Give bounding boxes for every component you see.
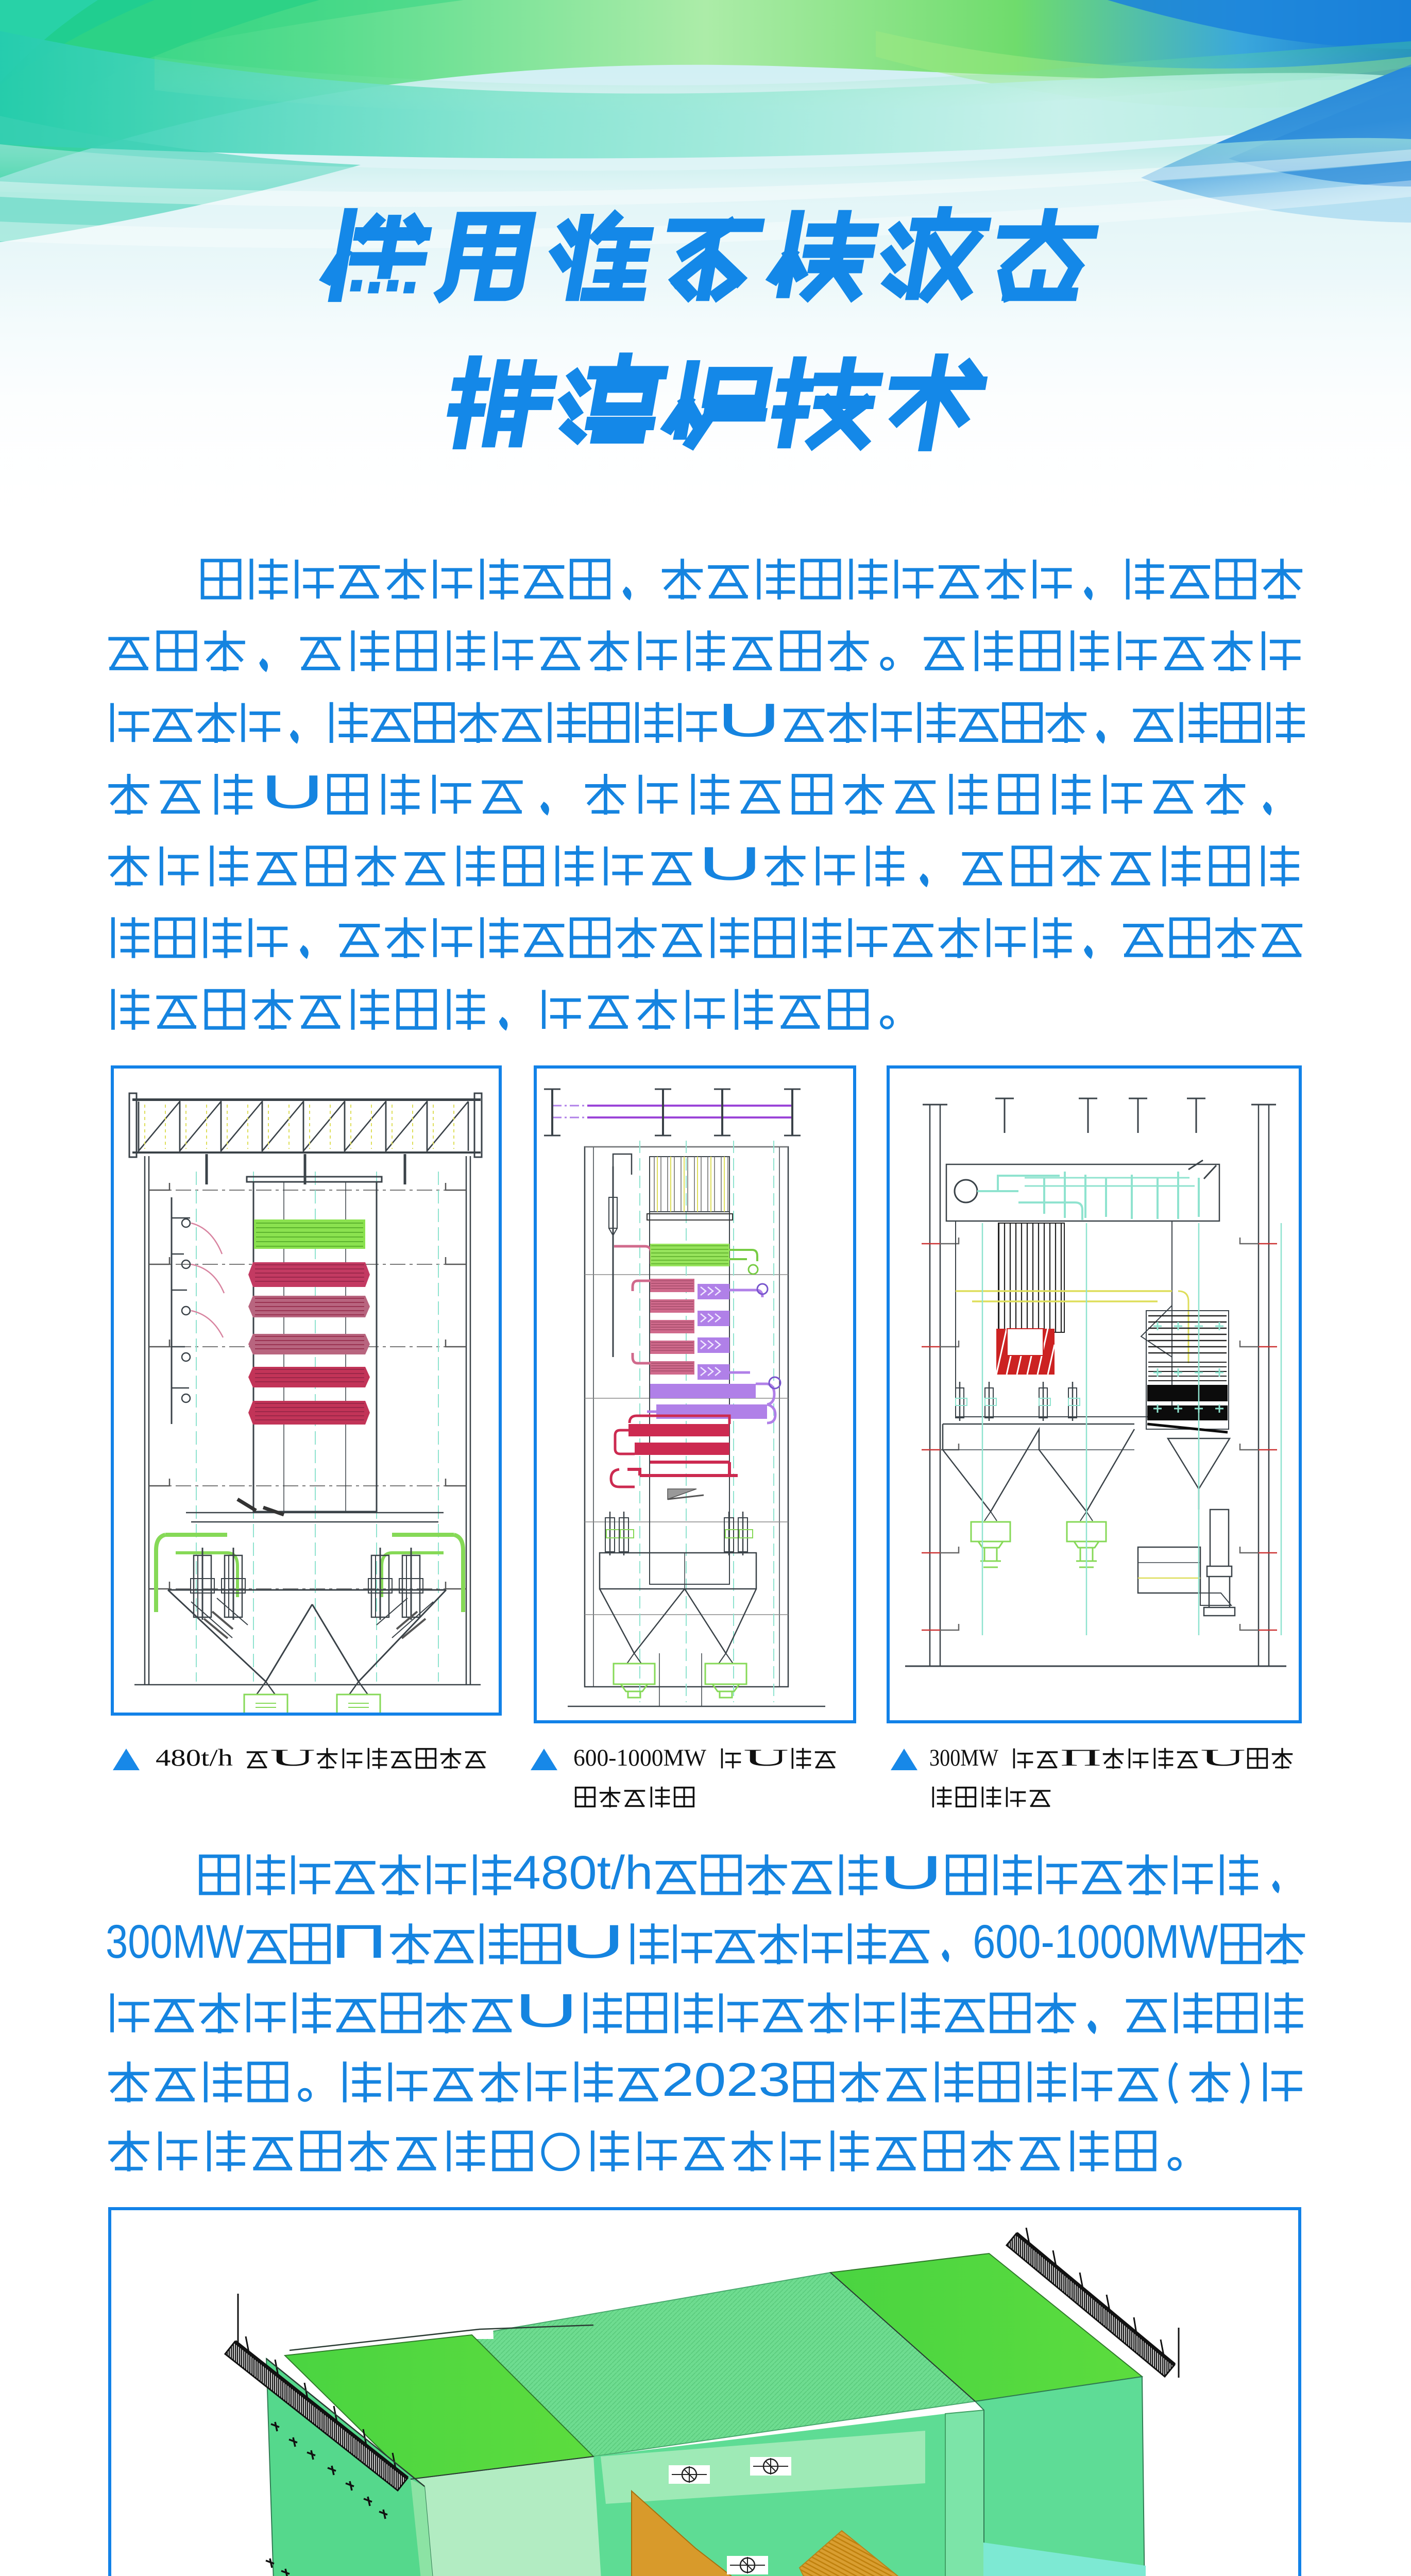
svg-text:U: U <box>261 766 325 819</box>
svg-text:300MW: 300MW <box>106 1916 244 1968</box>
svg-text:600-1000MW: 600-1000MW <box>973 1916 1218 1968</box>
svg-text:U: U <box>879 1852 943 1899</box>
svg-text:U: U <box>514 1985 578 2037</box>
svg-text:600-1000MW: 600-1000MW <box>573 1744 707 1771</box>
svg-text:U: U <box>743 1744 789 1771</box>
svg-text:U: U <box>717 694 781 747</box>
svg-text:Π: Π <box>1060 1744 1101 1771</box>
svg-text:Π: Π <box>331 1916 387 1968</box>
svg-text:2023: 2023 <box>662 2054 791 2106</box>
svg-text:U: U <box>698 838 762 890</box>
svg-text:480t/h: 480t/h <box>156 1744 233 1771</box>
svg-text:U: U <box>561 1916 625 1968</box>
svg-text:U: U <box>270 1744 315 1771</box>
svg-text:U: U <box>1200 1744 1246 1771</box>
svg-text:480t/h: 480t/h <box>513 1852 653 1899</box>
svg-text:300MW: 300MW <box>929 1744 999 1771</box>
